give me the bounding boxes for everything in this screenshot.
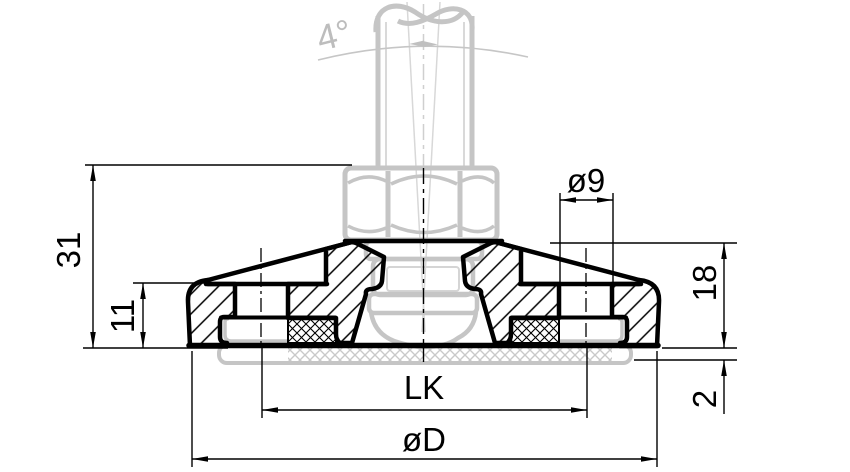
dim-base-diameter-label: øD [402,421,446,458]
base-right-rim-section [612,280,659,346]
pad-phantom-left-recess [225,319,288,342]
dim-swivel-angle-label: 4° [312,11,355,59]
arrow-11-bottom [140,332,146,348]
arrow-od-left [192,456,208,462]
dim-shoulder-height-label: 11 [104,299,141,333]
dim-overall-height-label: 31 [50,232,87,269]
arrow-lk-right [571,407,587,413]
base-left-rim-section [188,280,235,346]
dim-bolt-circle-label: LK [404,369,444,406]
arrow-lk-left [262,407,278,413]
pad-phantom-right-recess [559,319,622,342]
arrow-18-top [721,243,727,259]
dim-base-height-label: 18 [686,265,723,302]
rubber-pad-section-right [511,318,559,343]
arrow-31-top [90,165,96,181]
arrow-18-bottom [721,332,727,348]
levelling-foot-section-drawing: 4° [0,0,850,472]
arrow-2-up [721,360,727,376]
arrow-od-right [641,456,657,462]
hex-nut-chamfer-arcs [348,176,494,233]
technical-drawing-canvas: 4° [0,0,850,472]
arrow-11-top [140,283,146,299]
rubber-pad-section-left [288,318,336,343]
dim-pad-protrusion-label: 2 [686,390,723,408]
dim-hole-diameter-label: ø9 [567,162,606,199]
pad-phantom-crosshatch [288,348,612,361]
arrow-31-bottom [90,332,96,348]
